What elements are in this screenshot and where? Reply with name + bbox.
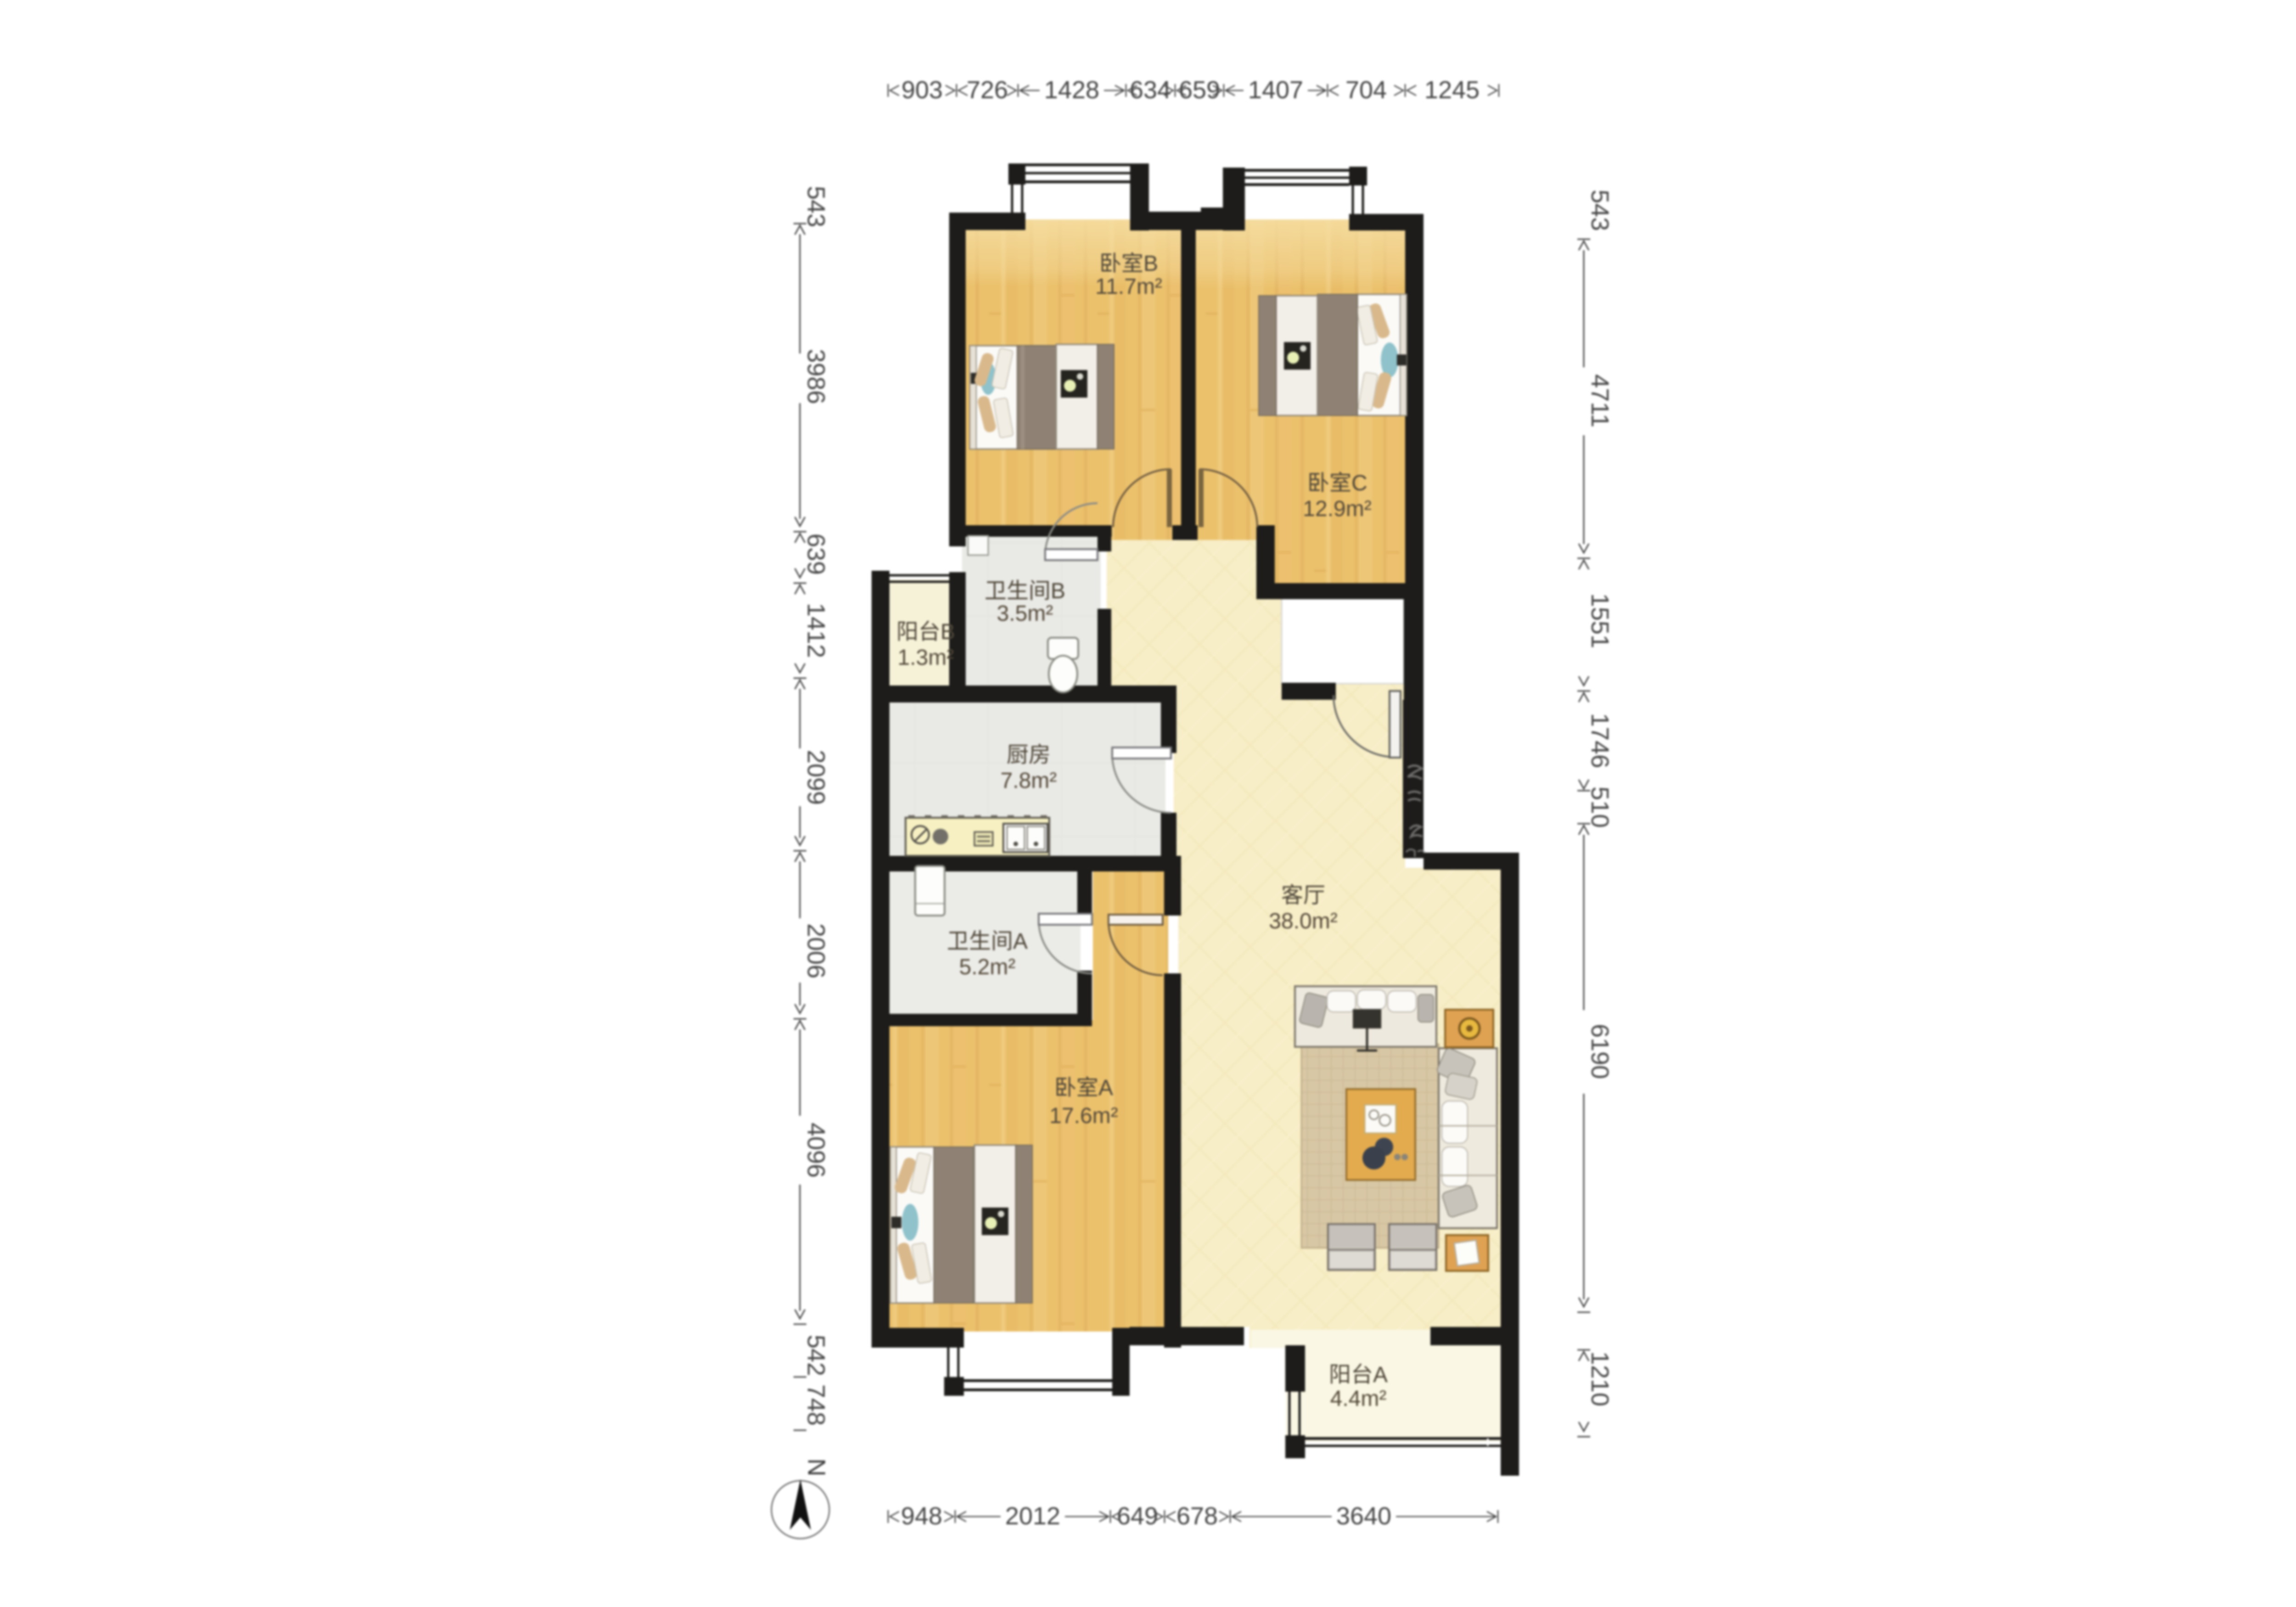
svg-text:7.8m²: 7.8m²	[1001, 769, 1057, 793]
svg-text:1746: 1746	[1586, 713, 1614, 768]
svg-text:948: 948	[901, 1502, 942, 1530]
svg-text:A: A	[1098, 1076, 1113, 1100]
svg-text:A: A	[1013, 929, 1028, 954]
svg-text:659: 659	[1179, 76, 1220, 104]
svg-text:1245: 1245	[1424, 76, 1480, 104]
svg-text:639: 639	[802, 534, 830, 575]
svg-text:3640: 3640	[1336, 1502, 1391, 1530]
svg-text:17.6m²: 17.6m²	[1049, 1104, 1118, 1128]
svg-text:1412: 1412	[802, 603, 830, 658]
svg-text:2012: 2012	[1005, 1502, 1060, 1530]
svg-text:1407: 1407	[1248, 76, 1303, 104]
svg-text:2006: 2006	[802, 923, 830, 978]
svg-text:4711: 4711	[1586, 374, 1614, 427]
svg-text:4.4m²: 4.4m²	[1330, 1387, 1387, 1411]
svg-text:11.7m²: 11.7m²	[1095, 275, 1162, 299]
svg-text:634: 634	[1130, 76, 1171, 104]
svg-text:510: 510	[1586, 787, 1614, 828]
svg-text:3986: 3986	[802, 349, 830, 404]
svg-text:678: 678	[1176, 1502, 1218, 1530]
svg-text:B: B	[1143, 252, 1158, 276]
svg-text:649: 649	[1117, 1502, 1158, 1530]
svg-text:B: B	[940, 620, 955, 644]
svg-text:12.9m²: 12.9m²	[1303, 497, 1371, 521]
svg-text:6190: 6190	[1586, 1024, 1614, 1079]
svg-text:B: B	[1051, 579, 1065, 603]
svg-text:704: 704	[1345, 76, 1387, 104]
svg-text:542: 542	[802, 1335, 830, 1376]
svg-text:543: 543	[1586, 190, 1614, 231]
svg-text:5.2m²: 5.2m²	[959, 955, 1016, 979]
svg-text:903: 903	[901, 76, 943, 104]
svg-text:1551: 1551	[1586, 593, 1614, 648]
svg-text:1.3m²: 1.3m²	[898, 646, 954, 670]
svg-text:1428: 1428	[1044, 76, 1099, 104]
svg-text:2099: 2099	[802, 750, 830, 805]
svg-text:C: C	[1351, 471, 1367, 495]
svg-text:A: A	[1373, 1363, 1388, 1387]
svg-text:543: 543	[802, 186, 830, 227]
svg-text:N: N	[803, 1459, 830, 1477]
svg-text:4096: 4096	[802, 1123, 830, 1178]
svg-text:726: 726	[967, 76, 1008, 104]
svg-text:3.5m²: 3.5m²	[997, 601, 1053, 626]
svg-text:748: 748	[802, 1384, 830, 1426]
svg-text:1210: 1210	[1586, 1351, 1614, 1406]
svg-text:38.0m²: 38.0m²	[1269, 909, 1337, 933]
